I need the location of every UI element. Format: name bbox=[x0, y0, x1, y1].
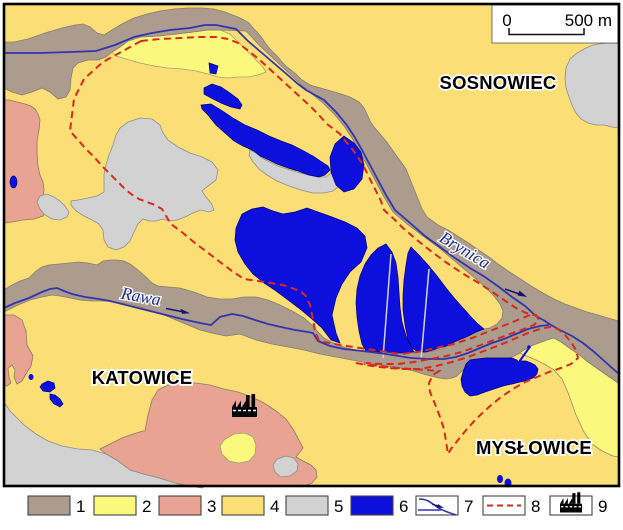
svg-text:9: 9 bbox=[598, 497, 607, 516]
svg-text:8: 8 bbox=[531, 497, 540, 516]
svg-text:MYSŁOWICE: MYSŁOWICE bbox=[476, 437, 592, 458]
svg-text:1: 1 bbox=[76, 497, 85, 516]
svg-text:KATOWICE: KATOWICE bbox=[92, 367, 193, 388]
svg-text:SOSNOWIEC: SOSNOWIEC bbox=[440, 72, 557, 93]
svg-text:2: 2 bbox=[142, 497, 151, 516]
svg-text:6: 6 bbox=[399, 497, 408, 516]
svg-text:7: 7 bbox=[464, 497, 473, 516]
svg-text:500 m: 500 m bbox=[565, 11, 612, 30]
svg-text:4: 4 bbox=[270, 497, 279, 516]
svg-text:0: 0 bbox=[502, 11, 511, 30]
svg-text:3: 3 bbox=[207, 497, 216, 516]
svg-text:5: 5 bbox=[334, 497, 343, 516]
